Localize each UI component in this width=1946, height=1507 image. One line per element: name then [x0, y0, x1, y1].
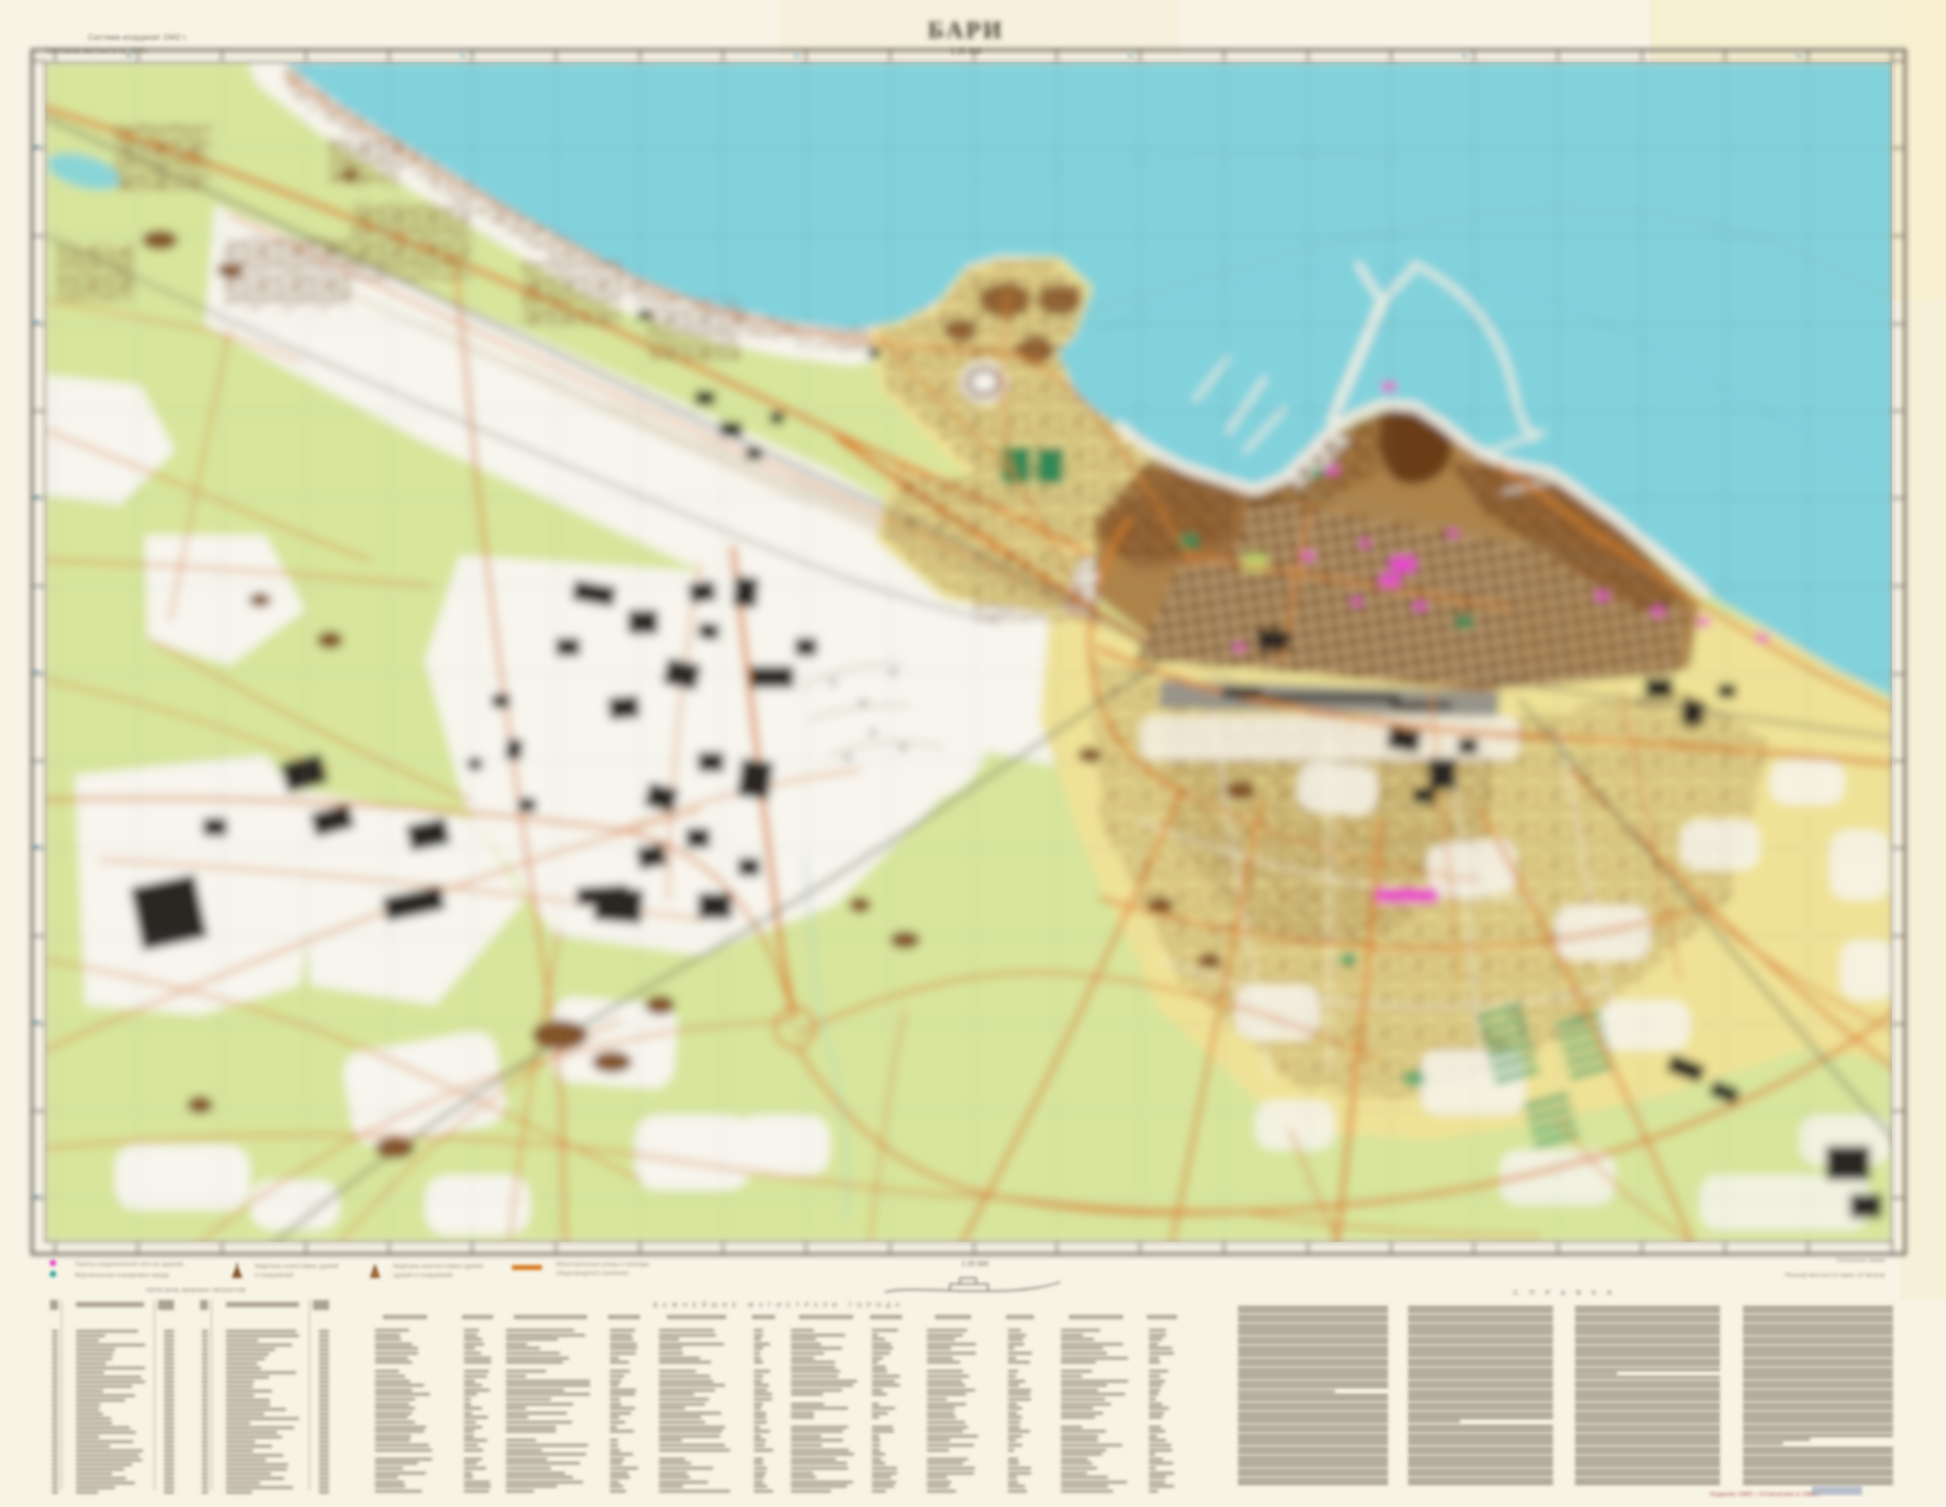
- svg-text:ПЕРЕЧЕНЬ ВАЖНЫХ ОБЪЕКТОВ: ПЕРЕЧЕНЬ ВАЖНЫХ ОБЪЕКТОВ: [146, 1288, 246, 1294]
- svg-text:общегородского значения: общегородского значения: [556, 1271, 628, 1277]
- svg-text:Вертикальная планировка города: Вертикальная планировка города: [75, 1273, 170, 1279]
- svg-text:52: 52: [1796, 54, 1803, 60]
- svg-text:БАРИ: БАРИ: [928, 18, 1004, 44]
- svg-text:Издание 1985 г. Отпечатано в: Издание 1985 г. Отпечатано в 1986 г.: [1710, 1491, 1821, 1498]
- svg-text:52: 52: [1462, 54, 1469, 60]
- svg-text:Система координат 1942 г.: Система координат 1942 г.: [88, 33, 187, 42]
- svg-text:СПРАВКА: СПРАВКА: [1513, 1290, 1622, 1297]
- svg-text:Сплошные линии: Сплошные линии: [1836, 1258, 1885, 1264]
- svg-text:52: 52: [1128, 54, 1135, 60]
- svg-text:46: 46: [33, 1020, 40, 1026]
- svg-text:Магистральные улицы и проезды: Магистральные улицы и проезды: [556, 1262, 649, 1268]
- svg-text:46: 46: [33, 1195, 40, 1201]
- svg-text:Рельеф местности через 10 метр: Рельеф местности через 10 метров: [1785, 1273, 1885, 1279]
- svg-text:46: 46: [33, 670, 40, 676]
- svg-text:46: 46: [33, 845, 40, 851]
- svg-text:1:25 000: 1:25 000: [950, 47, 982, 56]
- svg-text:и сооружений: и сооружений: [255, 1272, 293, 1279]
- svg-text:46: 46: [33, 320, 40, 326]
- svg-text:ВАЖНЕЙШИЕ МАГИСТРАЛИ ГОРОДА: ВАЖНЕЙШИЕ МАГИСТРАЛИ ГОРОДА: [653, 1300, 905, 1309]
- svg-text:Кварталы огнестойких зданий: Кварталы огнестойких зданий: [255, 1263, 338, 1270]
- svg-text:Состояние местности на 1979 г.: Состояние местности на 1979 г.: [46, 48, 150, 55]
- svg-text:46: 46: [33, 495, 40, 501]
- svg-text:52: 52: [794, 54, 801, 60]
- svg-text:Кварталы неогнестойких зданий: Кварталы неогнестойких зданий: [393, 1263, 483, 1270]
- svg-text:Пункты геодезической сети на з: Пункты геодезической сети на зданиях: [75, 1261, 184, 1268]
- svg-text:1:25 000: 1:25 000: [961, 1261, 988, 1268]
- svg-text:зданий и сооружений: зданий и сооружений: [393, 1272, 453, 1279]
- svg-text:52: 52: [460, 54, 467, 60]
- svg-text:46: 46: [33, 145, 40, 151]
